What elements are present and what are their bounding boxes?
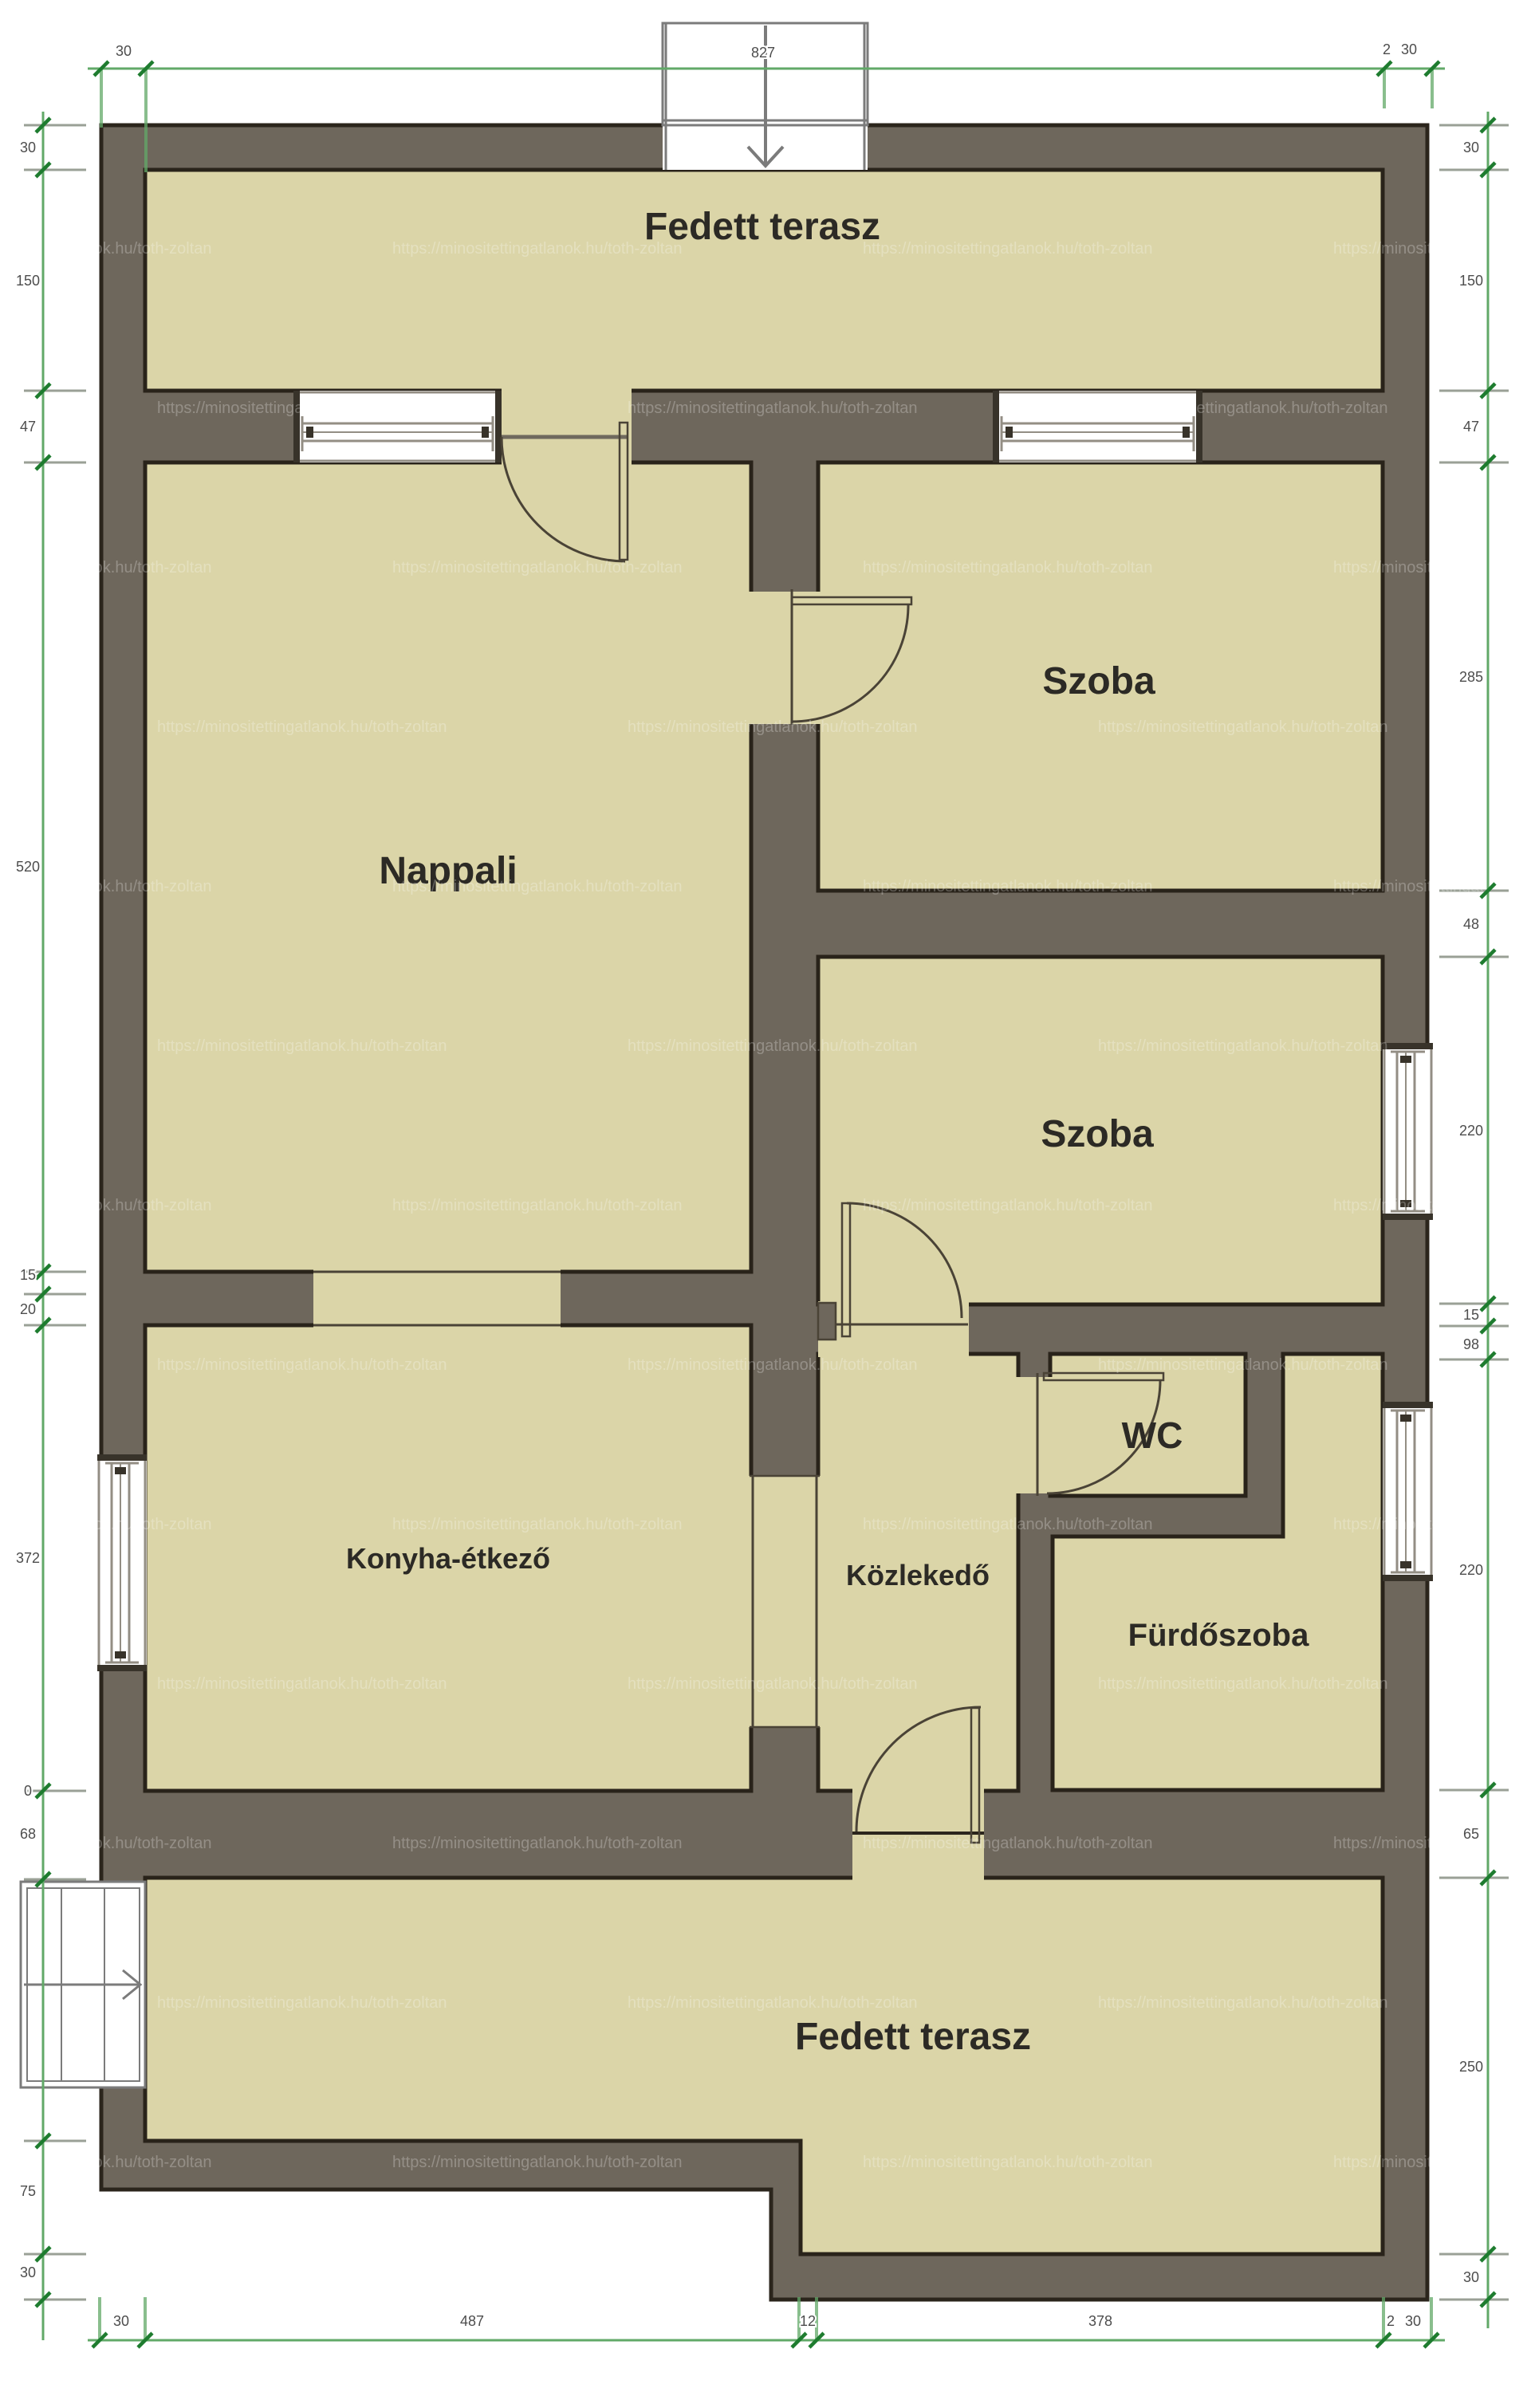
svg-text:30: 30 (1405, 2313, 1421, 2329)
svg-text:30: 30 (20, 2264, 36, 2280)
svg-text:372: 372 (16, 1550, 40, 1566)
svg-text:2: 2 (1387, 2313, 1395, 2329)
svg-text:0: 0 (24, 1783, 32, 1799)
svg-text:30: 30 (20, 140, 36, 155)
svg-text:20: 20 (20, 1301, 36, 1317)
svg-text:150: 150 (16, 273, 40, 289)
svg-text:68: 68 (20, 1826, 36, 1842)
svg-text:2: 2 (1383, 41, 1391, 57)
svg-text:75: 75 (20, 2183, 36, 2199)
svg-text:30: 30 (113, 2313, 129, 2329)
svg-text:827: 827 (751, 45, 775, 61)
svg-text:378: 378 (1088, 2313, 1112, 2329)
svg-text:520: 520 (16, 859, 40, 875)
svg-text:12: 12 (800, 2313, 816, 2329)
svg-text:47: 47 (20, 419, 36, 435)
svg-text:30: 30 (116, 43, 132, 59)
svg-text:15: 15 (20, 1267, 36, 1283)
svg-text:30: 30 (1401, 41, 1417, 57)
svg-text:487: 487 (460, 2313, 484, 2329)
